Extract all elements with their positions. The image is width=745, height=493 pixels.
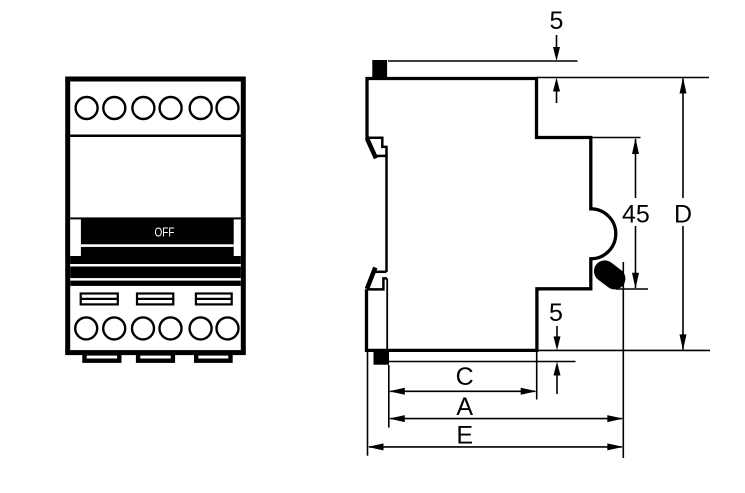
svg-text:C: C — [456, 363, 474, 391]
svg-text:A: A — [456, 393, 473, 421]
svg-text:45: 45 — [622, 201, 650, 229]
svg-text:E: E — [456, 422, 473, 450]
svg-text:OFF: OFF — [155, 225, 175, 240]
svg-text:5: 5 — [550, 7, 564, 35]
svg-text:5: 5 — [549, 299, 563, 327]
svg-text:D: D — [674, 201, 692, 229]
